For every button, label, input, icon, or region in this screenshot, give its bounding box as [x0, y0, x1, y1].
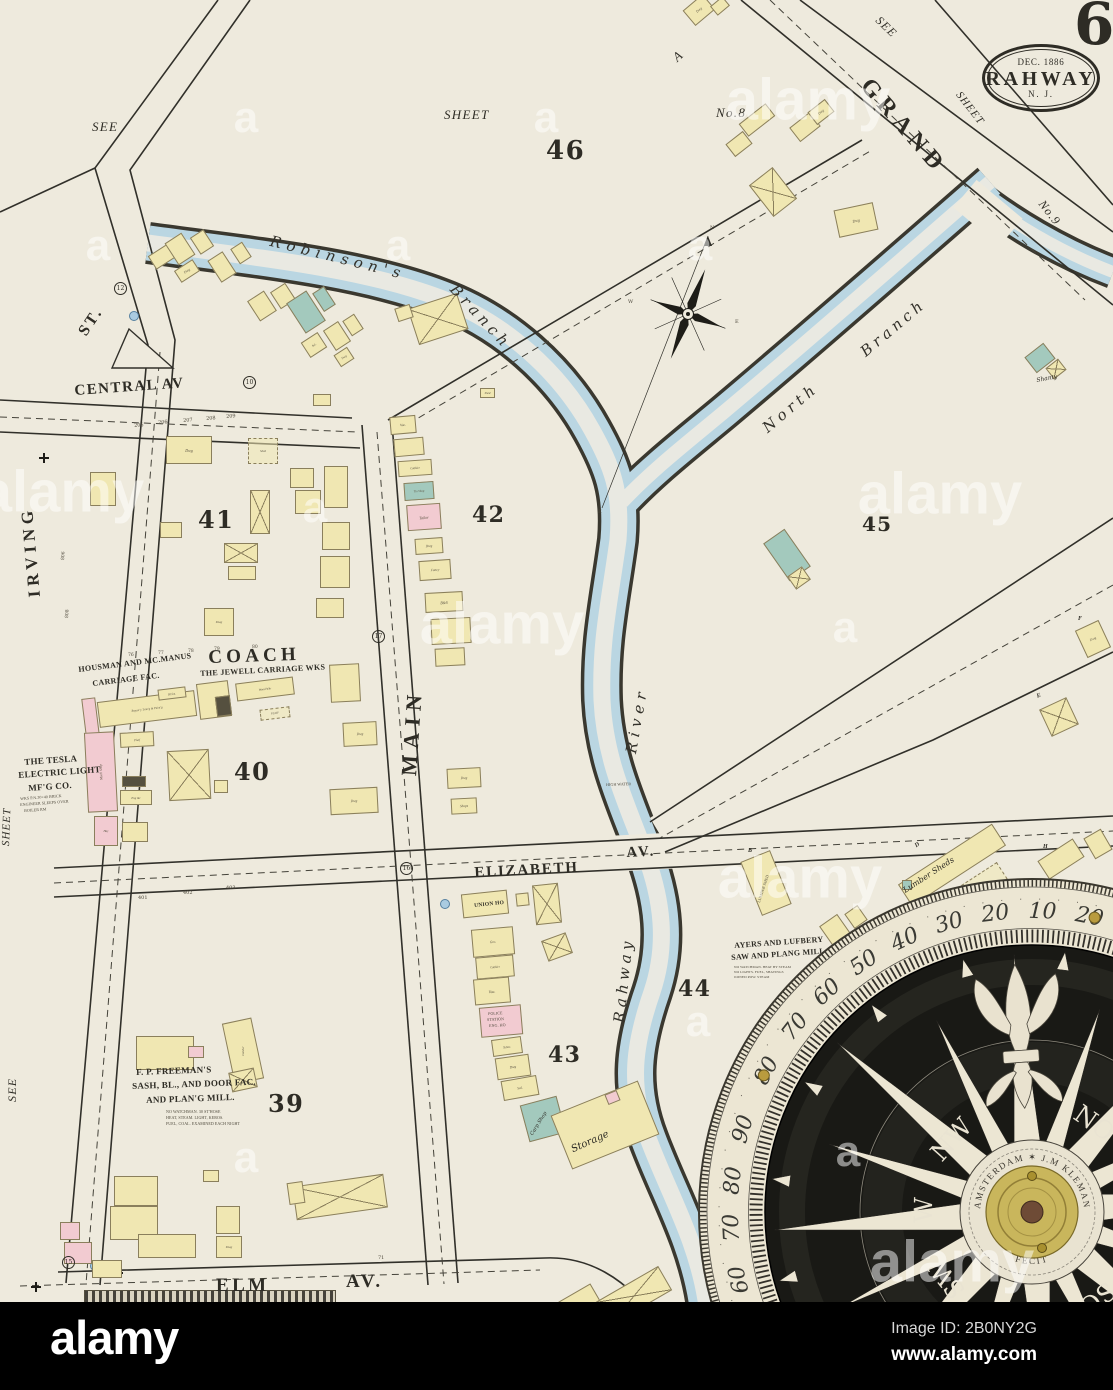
building [207, 251, 236, 283]
marker-d: D [914, 842, 921, 849]
building-label: Sal. [302, 333, 326, 356]
block-46: 46 [546, 138, 585, 164]
building: Cobbler [475, 954, 515, 979]
building [224, 543, 258, 563]
building [114, 1176, 158, 1206]
building: Dwg [342, 721, 377, 747]
building [60, 1222, 80, 1240]
building-label: Fancy [419, 560, 450, 580]
building [90, 472, 116, 506]
fac-freeman-note3: FUEL, COAL. EXAMINED EACH NIGHT [166, 1122, 240, 1126]
building [92, 1260, 122, 1278]
alamy-watermark-bar: alamy Image ID: 2B0NY2G www.alamy.com [0, 1302, 1113, 1390]
building-label: Dwg [835, 203, 878, 236]
block-44: 44 [678, 978, 711, 1000]
bridges [611, 180, 1022, 872]
block-42: 42 [472, 504, 505, 526]
street-grand: GRAND [856, 74, 952, 179]
alamy-watermark: alamy [870, 1229, 1034, 1296]
house-num: 78 [188, 650, 194, 655]
river-north: North [760, 381, 821, 436]
compass-direction-w: W [909, 1197, 938, 1224]
building-label: Vac. [474, 978, 510, 1005]
building [230, 242, 252, 265]
meridian-letter: E [735, 320, 739, 325]
sheet-top: SHEET [444, 108, 490, 121]
building: Sal. [301, 332, 328, 358]
building [329, 663, 361, 703]
building-label: Sal. [502, 1076, 539, 1100]
building-label: Dwg [496, 1055, 530, 1079]
building [430, 617, 471, 645]
compass-ring-number: 90 [727, 1112, 759, 1146]
meridian-letter: N [710, 226, 714, 231]
alamy-watermark-a: a [836, 1127, 860, 1177]
compass-direction-nw: NW [925, 1112, 979, 1167]
alamy-watermark-a: a [688, 221, 712, 271]
building: Hay [94, 816, 118, 846]
building [324, 466, 348, 508]
alamy-watermark-a: a [833, 603, 857, 653]
building [819, 914, 851, 946]
building [122, 776, 146, 787]
river-blue [148, 182, 1113, 1330]
sheet-left: SHEET [1, 808, 13, 847]
street-elizabeth-av: AV. [626, 844, 656, 861]
building-label: Cobbler [399, 460, 432, 476]
compass-ring-number: 10 [1028, 899, 1057, 925]
building-label: Tin Shop [404, 482, 433, 500]
house-num: 80 [252, 646, 258, 651]
sheet-no9: No.9 [1037, 198, 1064, 227]
building: Tobac. [491, 1036, 523, 1057]
building-label: Dwg [684, 0, 714, 25]
building: Dwg [683, 0, 716, 26]
building-label: Dwg [416, 538, 443, 554]
building-label: Dwg [335, 348, 353, 366]
fac-housman-2: CARRIAGE FAC. [92, 672, 160, 688]
fac-freeman-3: AND PLAN'G MILL. [146, 1093, 235, 1105]
fac-ayers-note3: JOINED POW. STEAM [734, 976, 769, 980]
compass-ring-number: 20 [979, 900, 1011, 928]
page-number: 6 [1074, 0, 1113, 58]
block-43: 43 [548, 1044, 581, 1066]
house-num: 205 [134, 423, 144, 429]
building: Platf [120, 731, 155, 748]
meridian-star [602, 236, 725, 508]
building-label: Shops [452, 798, 477, 813]
river-center [148, 182, 1113, 1330]
marker-a: A [670, 48, 686, 64]
building [228, 566, 256, 580]
building [749, 167, 797, 217]
building [216, 1206, 240, 1234]
street-elm: ELM [216, 1276, 270, 1295]
building-label: Dwg [343, 722, 376, 746]
building: Vac. [473, 976, 511, 1005]
building: Cobbler [397, 459, 432, 477]
sheet-see-tr: SEE [874, 14, 900, 39]
building [188, 1046, 204, 1058]
building: Tin Shop [403, 481, 434, 501]
building [532, 883, 562, 925]
building-label: Dwg [217, 1237, 241, 1257]
sheet-see-bl: SEE [6, 1078, 18, 1102]
fac-tesla-note3: BOILER RM [24, 807, 47, 813]
house-num: 401 [138, 896, 148, 901]
meridian-letter: W [628, 300, 633, 305]
circled-street-number: 17 [372, 630, 385, 643]
building-label: Bl.Sm. [159, 687, 186, 699]
house-num: 77 [158, 652, 164, 657]
bld-police-3: ENG. HO [489, 1023, 506, 1028]
hydrant-icons [31, 453, 123, 1292]
street-irving: IRVING [18, 506, 43, 598]
building-label: Eng &c [121, 791, 151, 804]
circled-street-number: 16 [400, 862, 413, 875]
building-label: Lumber [213, 1037, 273, 1065]
alamy-watermark-a: a [686, 997, 710, 1047]
alamy-watermark-a: a [234, 93, 258, 143]
building [215, 695, 232, 717]
compass-ring-number: 80 [719, 1165, 747, 1195]
fac-ayers-note1: NO WATCHMAN. HEAT BY STEAM [734, 966, 791, 970]
street-irving-st: ST. [76, 304, 107, 339]
note-high-water: HIGH WATER [606, 782, 631, 787]
building: Dwg [204, 608, 234, 636]
compass-ring-number: 40 [886, 922, 923, 957]
building [287, 1181, 306, 1205]
alamy-logo: alamy [50, 1310, 178, 1365]
building [167, 749, 212, 801]
building [290, 468, 314, 488]
fac-ayers-2: SAW AND PLANG MILL [731, 947, 825, 962]
building: PLATF [259, 706, 290, 721]
block-41: 41 [198, 508, 234, 532]
street-dashes [0, 0, 1113, 1286]
river-branch2: Branch [858, 297, 929, 360]
marker-h: H [1043, 844, 1048, 850]
street-elizabeth: ELIZABETH [474, 861, 579, 881]
compass-hub: AMSTERDAM ✶ J.M KLEMAN FECIT [960, 1140, 1104, 1284]
house-num: 79 [214, 648, 220, 653]
building: B&S [425, 591, 464, 613]
park-triangle [112, 329, 173, 368]
street-central-av: CENTRAL AV [74, 376, 185, 399]
svg-text:FECIT: FECIT [1014, 1253, 1049, 1266]
building [250, 490, 270, 534]
building-label: Hay [95, 817, 117, 845]
house-num: 209 [226, 414, 236, 420]
building: Gro. [471, 926, 515, 958]
badge-state: N. J. [1028, 90, 1054, 99]
building [316, 598, 344, 618]
circled-street-number: 10 [243, 376, 256, 389]
building [295, 490, 321, 514]
alamy-url-text: www.alamy.com [891, 1344, 1037, 1366]
house-num: 808 [66, 609, 71, 618]
fac-tesla-3: MF'G CO. [28, 781, 72, 793]
building-label: Cobbler [476, 955, 514, 978]
building-label: Vac. [390, 416, 415, 434]
house-num: 207 [183, 418, 193, 424]
building [435, 647, 466, 667]
building [710, 0, 730, 16]
house-num: 403 [226, 886, 236, 891]
building: Shops [451, 797, 478, 814]
building [214, 780, 228, 793]
building [844, 905, 867, 929]
block-45: 45 [862, 514, 892, 534]
circled-street-number: 12 [114, 282, 127, 295]
image-id-text: Image ID: 2B0NY2G [891, 1320, 1037, 1338]
building: Eng &c [120, 790, 152, 805]
building [515, 892, 529, 906]
compass-direction-sw: SW [922, 1253, 971, 1305]
house-num: 208 [206, 416, 216, 422]
fac-freeman-note1: NO WATCHMAN. 30 ST'HOSE [166, 1110, 221, 1114]
building: Dwg [1075, 620, 1111, 658]
fac-freeman-note2: HEAT, STEAM. LIGHT, KEROS. [166, 1116, 223, 1120]
building: Shed [480, 388, 495, 398]
building [1039, 697, 1079, 737]
building: Wood Wkr [235, 677, 295, 702]
building: Tailor [406, 503, 442, 531]
fac-freeman-1: F. P. FREEMAN'S [136, 1065, 212, 1077]
compass-ring-number: 70 [719, 1213, 745, 1242]
river-rahway: Rahway [612, 937, 636, 1024]
building [322, 522, 350, 550]
house-num: 76 [128, 654, 134, 659]
marker-f: F [1078, 616, 1082, 622]
house-num: 206 [158, 420, 168, 426]
building-label: B&S [426, 592, 463, 612]
building [203, 1170, 219, 1182]
compass-ring-number: 20 [1072, 902, 1105, 932]
sheet-see-tl: SEE [92, 120, 118, 133]
building: Fancy [418, 559, 451, 581]
building-label: Dwg [1076, 621, 1110, 657]
block-39: 39 [268, 1092, 304, 1116]
stock-photo-map-rahway-1886: DwgSal.DwgShedDwgDwgDwgDwgVac.CobblerTin… [0, 0, 1113, 1390]
fac-ayers-note2: NO LIGHTS. FUEL, SHAVINGS [734, 971, 784, 975]
building-label: Gro. [472, 927, 514, 956]
compass-ring-number: 80 [749, 1053, 784, 1089]
alamy-watermark-a: a [234, 1133, 258, 1183]
river-robinsons: Robinson's [268, 234, 407, 282]
badge-date: DEC. 1886 [1018, 58, 1065, 67]
compass-direction-letters: NWNOWSWSO [909, 1099, 1113, 1321]
building: Dwg [414, 537, 443, 555]
building: Dwg [216, 1236, 242, 1258]
building-label: Shed [249, 439, 277, 463]
block-40: 40 [234, 760, 270, 784]
building [122, 822, 148, 842]
building [313, 394, 331, 406]
sheet-right: SHEET [953, 90, 985, 127]
building-label: Dwg [448, 768, 481, 788]
building [292, 1174, 388, 1220]
building-label: Dwg [330, 788, 377, 814]
building: Dwg [446, 767, 481, 789]
river-river: River [624, 686, 650, 754]
compass-ring-number: 70 [777, 1008, 814, 1045]
building [541, 932, 573, 962]
building-label: Dwg [205, 609, 233, 635]
svg-text:AMSTERDAM ✶ J.M KLEMAN: AMSTERDAM ✶ J.M KLEMAN [972, 1152, 1092, 1209]
building-label: PLATF [261, 707, 290, 719]
meridian-letter: E [598, 510, 602, 515]
alamy-watermark-a: a [86, 221, 110, 271]
brass-hub [986, 1166, 1078, 1258]
house-num: 806 [62, 551, 67, 560]
sheet-no8: No.8 [716, 106, 746, 119]
fac-housman-1: HOUSMAN AND MC.MANUS [78, 652, 192, 674]
building-label: Dwg [167, 437, 211, 463]
house-num: 402 [183, 891, 193, 896]
circled-street-number: 15 [62, 1256, 75, 1269]
building: Shed [248, 438, 278, 464]
building: Dwg [329, 787, 378, 815]
compass-ring-number: 60 [808, 974, 846, 1011]
building-label: Dwg [809, 100, 833, 123]
street-elm-av: AV. [346, 1272, 384, 1291]
building-label: Wood Wkr [236, 678, 294, 701]
building-label: Shed [481, 389, 494, 397]
building [393, 437, 424, 458]
street-main: MAIN [398, 688, 426, 777]
building: Dwg [834, 202, 879, 238]
building: Dwg [166, 436, 212, 464]
building-label: Platf [121, 732, 154, 747]
compass-ring-number: 60 [724, 1263, 755, 1296]
building [320, 556, 350, 588]
river-outlines [148, 182, 1113, 1330]
compass-direction-no: NO [1069, 1099, 1113, 1147]
building [1083, 829, 1112, 860]
marker-e: E [1036, 693, 1042, 700]
building-label: Tobac. [492, 1037, 522, 1056]
marker-b: B [748, 848, 752, 854]
building [160, 522, 182, 538]
building [138, 1234, 196, 1258]
alamy-watermark: alamy [718, 845, 882, 912]
compass-ring-number: 50 [845, 945, 882, 981]
fleur-de-lis-icon [973, 962, 1067, 1112]
building: Vac. [389, 415, 416, 435]
house-num: 71 [378, 1256, 384, 1261]
bld-shanty: Shanty [1036, 374, 1058, 384]
badge-city: RAHWAY [986, 69, 1097, 89]
building-label: Tailor [407, 504, 441, 530]
